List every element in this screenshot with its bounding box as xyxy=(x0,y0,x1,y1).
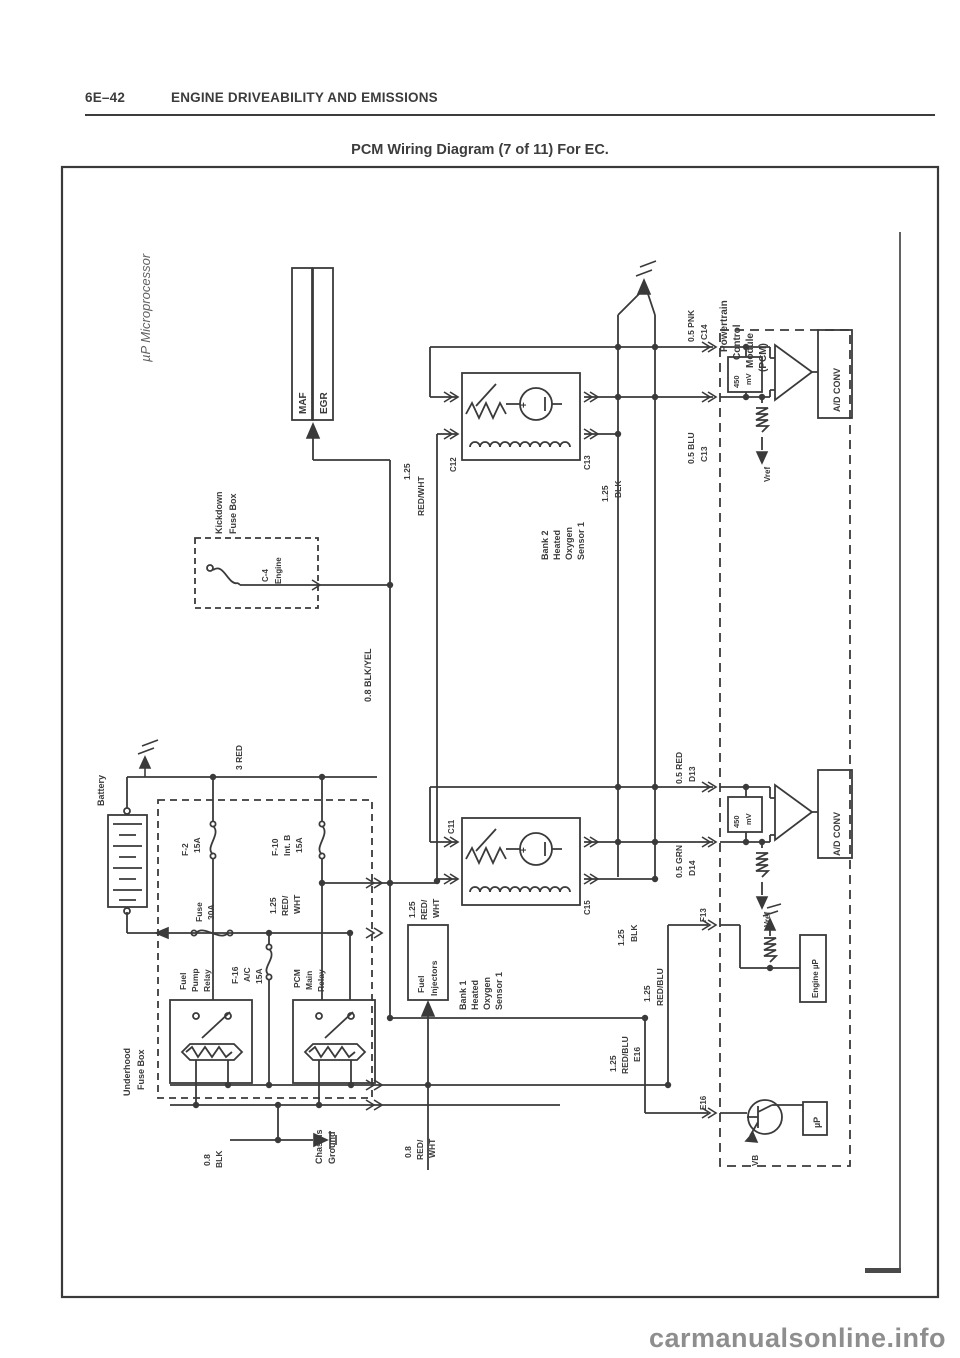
c4-label-2: Engine xyxy=(274,557,283,584)
wiring-diagram-svg: µP Microprocessor MAF EGR Kickdown Fuse … xyxy=(0,0,960,1358)
underhood-label-2: Fuse Box xyxy=(136,1049,146,1090)
underhood-label-1: Underhood xyxy=(122,1048,132,1096)
s2-plus: + xyxy=(519,402,530,408)
bank1-ho2s xyxy=(462,818,580,905)
wire-redblu-f-2: RED/BLU xyxy=(655,968,665,1006)
relay-main-label-2: Main xyxy=(304,971,314,990)
diagram-labels: µP Microprocessor MAF EGR Kickdown Fuse … xyxy=(96,253,842,1168)
c4-label-1: C-4 xyxy=(261,569,270,582)
s1-name-4: Sensor 1 xyxy=(494,972,504,1010)
mv-upper-1: 450 xyxy=(732,375,741,388)
kickdown-label-1: Kickdown xyxy=(214,491,224,534)
fuse-f2 xyxy=(210,821,215,858)
maf-arrow xyxy=(307,424,319,438)
wire-s2-redwht-1: 1.25 xyxy=(402,463,412,480)
wire-inj-1: 0.8 xyxy=(403,1146,413,1158)
fuse-f2-label-1: F-2 xyxy=(180,843,190,856)
s2-name-3: Oxygen xyxy=(564,527,574,560)
s1-name-2: Heated xyxy=(470,980,480,1010)
wire-redblu-f-1: 1.25 xyxy=(642,985,652,1002)
underhood-fuse-box xyxy=(158,800,372,1098)
egr-label: EGR xyxy=(319,392,330,414)
pcm-name-4: (PCM) xyxy=(758,343,769,372)
pcm-name-1: Powertrain xyxy=(719,300,730,352)
vb-arrow xyxy=(746,1133,757,1142)
fuse-f16-label-2: A/C xyxy=(242,967,252,982)
relay-fp-label-3: Relay xyxy=(202,969,212,992)
wire-red-1: 0.5 RED xyxy=(674,752,684,784)
s2-pin-right: C13 xyxy=(583,455,592,470)
wire-gndblk-1: 0.8 xyxy=(202,1154,212,1166)
kickdown-label-2: Fuse Box xyxy=(228,493,238,534)
wire-3red: 3 RED xyxy=(234,745,244,770)
wire-inj-3: WHT xyxy=(427,1138,437,1158)
engine-up-label: Engine µP xyxy=(811,959,820,999)
wire-s1-redwht-2: RED/ xyxy=(419,899,429,920)
manual-page: 6E–42 ENGINE DRIVEABILITY AND EMISSIONS … xyxy=(0,0,960,1358)
wire-s2-blk-1: 1.25 xyxy=(600,485,610,502)
wires xyxy=(127,291,818,1170)
fuel-injectors-box xyxy=(408,925,448,1000)
up-label: µP xyxy=(812,1117,822,1128)
wire-redblu-e-3: E16 xyxy=(632,1047,642,1062)
relay-fp-label-2: Pump xyxy=(190,968,200,992)
sensor-ground-icon xyxy=(636,261,656,294)
fuel-pump-relay xyxy=(170,1000,252,1083)
bank2-ho2s xyxy=(462,373,580,460)
fuse-f10-label-3: 15A xyxy=(294,837,304,853)
injector-arrow xyxy=(422,1002,434,1016)
arrows-and-grounds xyxy=(138,261,781,1149)
injectors-label-2: Injectors xyxy=(429,960,439,996)
chassis-gnd-label-2: Ground xyxy=(327,1132,337,1165)
diagram-border xyxy=(62,167,938,1297)
mv-lower-2: mV xyxy=(744,813,753,825)
fuse-f2-label-2: 15A xyxy=(192,837,202,853)
s1-pin-left: C11 xyxy=(447,819,456,834)
maf-label: MAF xyxy=(298,392,309,414)
fuse-f10-label-1: F-10 xyxy=(270,838,280,856)
s1-plus: + xyxy=(519,847,530,853)
fuse-f16-label-3: 15A xyxy=(254,968,264,984)
pcm-box xyxy=(720,330,850,1166)
s1-name-3: Oxygen xyxy=(482,977,492,1010)
adconv-lower: A/D CONV xyxy=(832,812,842,856)
fuse-f16-label-1: F-16 xyxy=(230,966,240,984)
wire-blkyel: 0.8 BLK/YEL xyxy=(363,648,373,702)
wire-s2-blk-2: BLK xyxy=(613,480,623,498)
wire-gndblk-2: BLK xyxy=(214,1150,224,1168)
chassis-gnd-label-1: Chassis xyxy=(314,1129,324,1164)
wire-s1-redwht-3: WHT xyxy=(431,898,441,918)
pcm-main-relay xyxy=(293,1000,375,1083)
handwritten-note: µP Microprocessor xyxy=(138,253,153,362)
s2-pin-left: C12 xyxy=(449,457,458,472)
relay-main-label-1: PCM xyxy=(292,969,302,988)
vb-label: VB xyxy=(751,1155,760,1166)
wire-s1-redwht-1: 1.25 xyxy=(407,901,417,918)
diagram-ref-mark xyxy=(865,1268,901,1273)
f13-resistor xyxy=(764,938,776,962)
pcm-name-2: Control xyxy=(732,324,743,360)
relay-fp-label-1: Fuel xyxy=(178,973,188,990)
battery-ground-icon xyxy=(138,740,158,777)
fuse-30a-label-1: Fuse xyxy=(194,902,204,922)
fuse-30a-label-2: 30A xyxy=(206,904,216,920)
fuse-f10-label-2: Int. B xyxy=(282,835,292,856)
wire-grn-1: 0.5 GRN xyxy=(674,845,684,878)
mv-lower-1: 450 xyxy=(732,815,741,828)
vref-arrow-lower xyxy=(757,897,767,908)
wire-s1-blk-2: BLK xyxy=(629,924,639,942)
wire-redblu-e-1: 1.25 xyxy=(608,1055,618,1072)
injectors-label-1: Fuel xyxy=(416,976,426,993)
vref-lower: Vref xyxy=(763,912,772,927)
s2-name-1: Bank 2 xyxy=(540,530,550,560)
watermark: carmanualsonline.info xyxy=(649,1323,946,1354)
wire-redblu-e-2: RED/BLU xyxy=(620,1036,630,1074)
wire-feed-1: 1.25 xyxy=(268,897,278,914)
s1-pin-right: C15 xyxy=(583,900,592,915)
wire-blu-2: C13 xyxy=(699,446,709,462)
s2-name-2: Heated xyxy=(552,530,562,560)
wire-feed-2: RED/ xyxy=(280,895,290,916)
vref-upper: Vref xyxy=(763,467,772,482)
battery-label: Battery xyxy=(96,775,106,806)
pin-f13: F13 xyxy=(699,908,708,922)
pin-e16: E16 xyxy=(699,1095,708,1110)
s2-name-4: Sensor 1 xyxy=(576,522,586,560)
vref-arrow-upper xyxy=(757,452,767,463)
pcm-name-3: Module xyxy=(745,333,756,368)
wire-s1-blk-1: 1.25 xyxy=(616,929,626,946)
wire-blu-1: 0.5 BLU xyxy=(686,432,696,464)
wire-pnk-2: C14 xyxy=(699,324,709,340)
battery-symbol xyxy=(108,808,147,914)
wire-red-2: D13 xyxy=(687,766,697,782)
dashed-boxes xyxy=(158,330,850,1166)
components xyxy=(108,268,852,1135)
kickdown-fuse-box xyxy=(195,538,318,608)
relay-main-label-3: Relay xyxy=(316,969,326,992)
wire-grn-2: D14 xyxy=(687,860,697,876)
fuse-f10 xyxy=(319,821,324,858)
mv-upper-2: mV xyxy=(744,373,753,385)
wire-inj-2: RED/ xyxy=(415,1139,425,1160)
wire-pnk-1: 0.5 PNK xyxy=(686,309,696,342)
fuse-f16 xyxy=(266,944,271,979)
adconv-upper: A/D CONV xyxy=(832,368,842,412)
wire-feed-3: WHT xyxy=(292,894,302,914)
wire-s2-redwht-2: RED/WHT xyxy=(416,476,426,516)
c4-fuse xyxy=(207,565,240,585)
s1-name-1: Bank 1 xyxy=(458,980,468,1010)
